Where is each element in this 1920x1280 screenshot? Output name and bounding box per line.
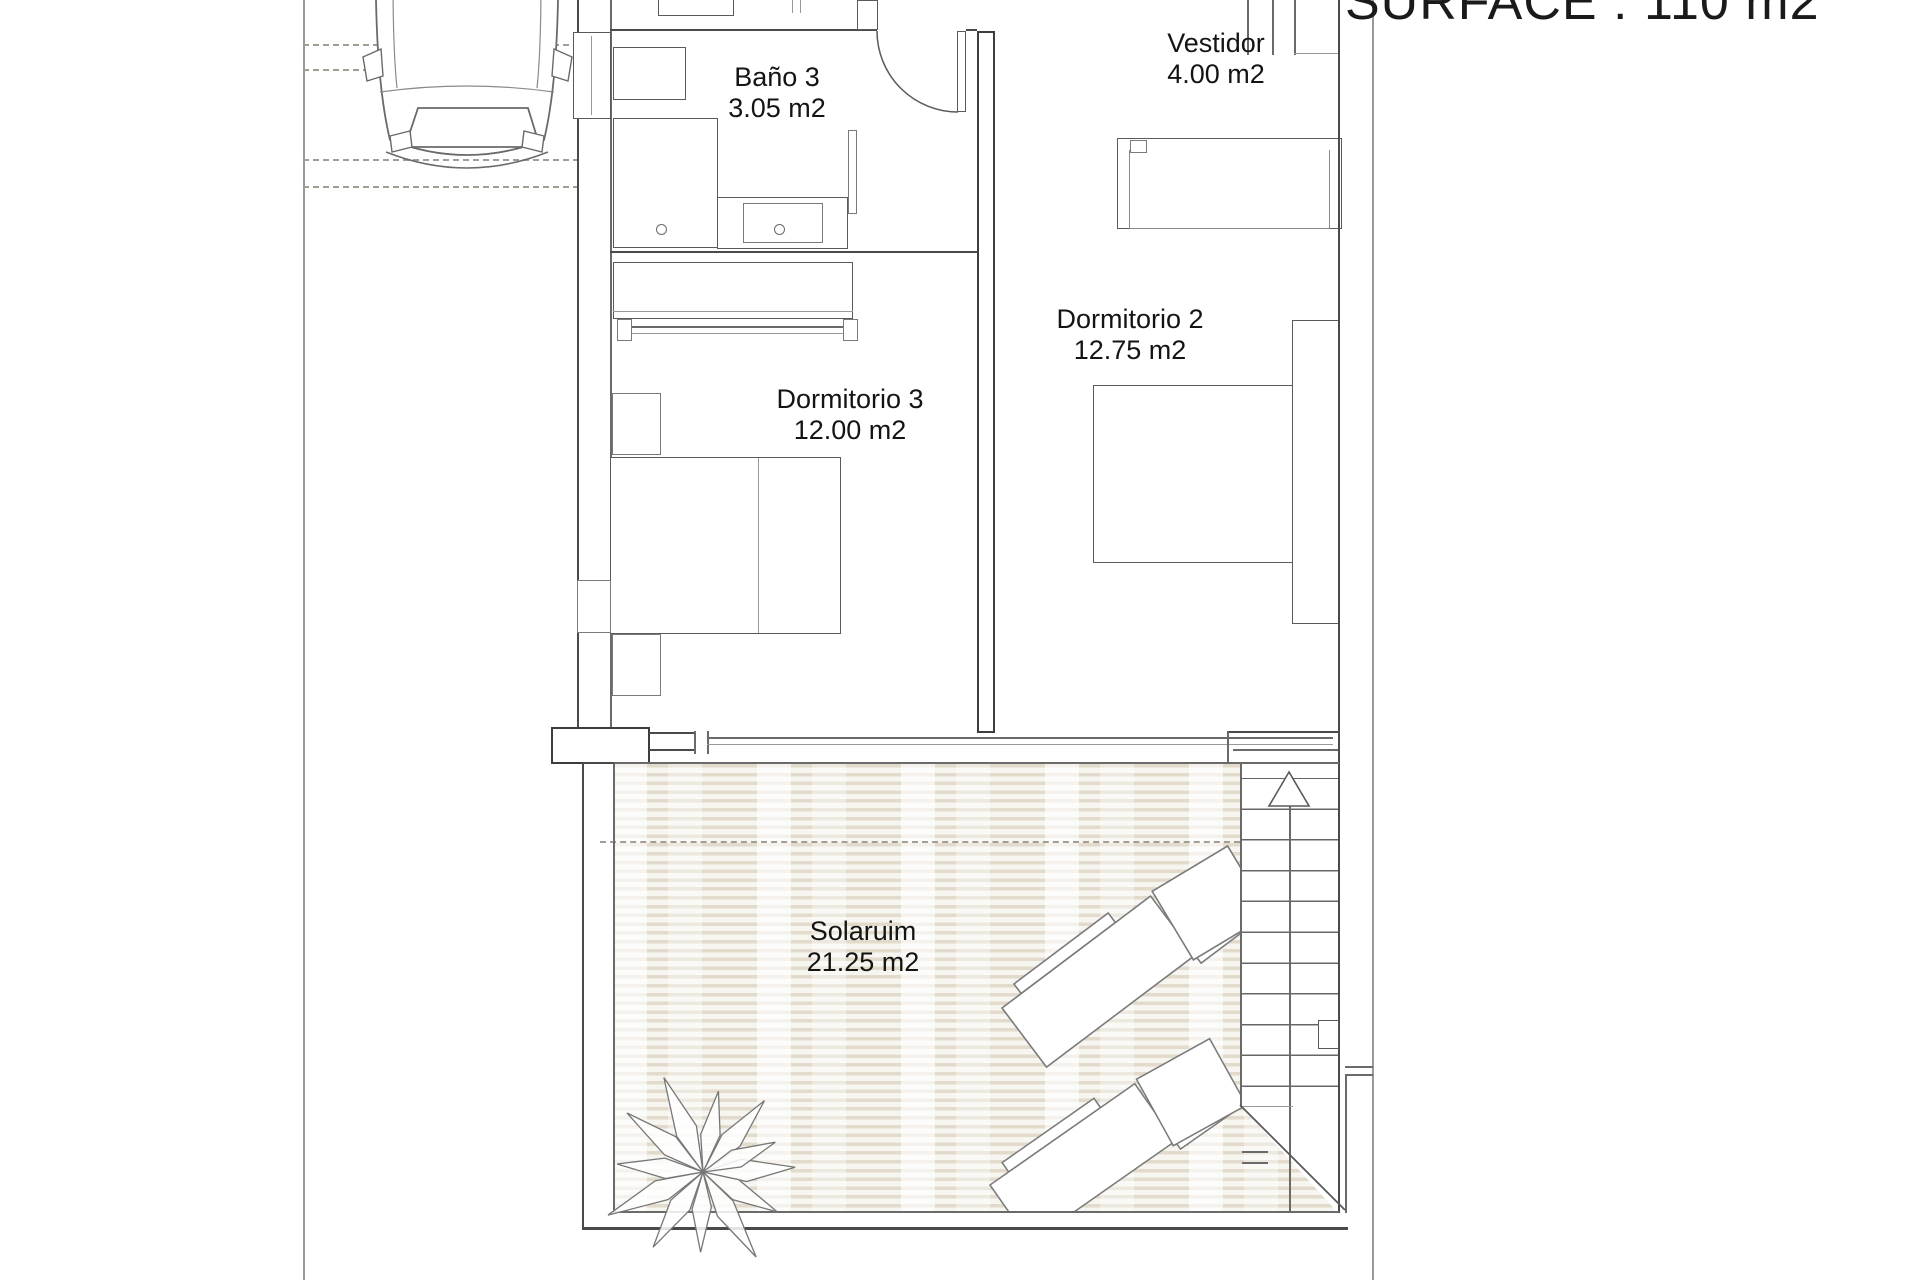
room-area: 4.00 m2: [1106, 59, 1326, 90]
stair-diagonal-cut: [1240, 1105, 1345, 1210]
floor-plan-canvas: Baño 3 3.05 m2 Vestidor 4.00 m2 Dormitor…: [0, 0, 1920, 1280]
stairs-up-arrow-icon: [1269, 772, 1309, 806]
room-area: 21.25 m2: [753, 947, 973, 978]
door-arc-icon: [877, 31, 958, 112]
room-name: Dormitorio 3: [740, 384, 960, 415]
surface-title: SURFACE : 110 m2: [1345, 0, 1820, 32]
room-label-solarium: Solaruim 21.25 m2: [753, 916, 973, 978]
room-area: 3.05 m2: [667, 93, 887, 124]
room-name: Solaruim: [753, 916, 973, 947]
room-label-dormitorio2: Dormitorio 2 12.75 m2: [1020, 304, 1240, 366]
room-name: Baño 3: [667, 62, 887, 93]
room-area: 12.00 m2: [740, 415, 960, 446]
room-label-vestidor: Vestidor 4.00 m2: [1106, 28, 1326, 90]
room-label-dormitorio3: Dormitorio 3 12.00 m2: [740, 384, 960, 446]
plant-icon: [590, 1060, 825, 1280]
plan-overlay: [0, 0, 1920, 1280]
room-label-bano3: Baño 3 3.05 m2: [667, 62, 887, 124]
room-name: Vestidor: [1106, 28, 1326, 59]
room-area: 12.75 m2: [1020, 335, 1240, 366]
room-name: Dormitorio 2: [1020, 304, 1240, 335]
